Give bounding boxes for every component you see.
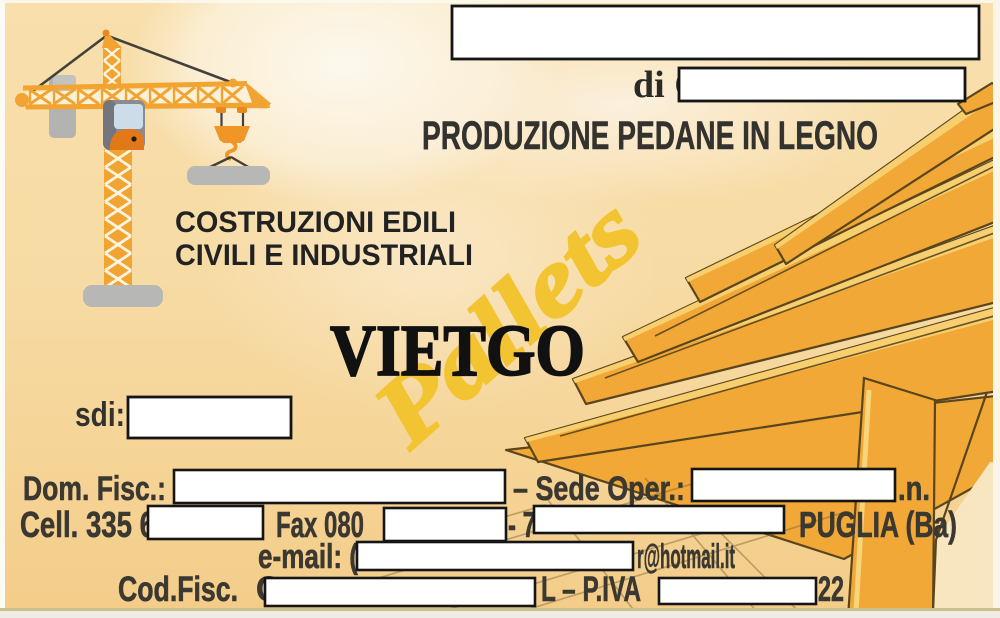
svg-text:L – P.IVA: L – P.IVA [541, 570, 641, 609]
svg-text:Cod.Fisc.: Cod.Fisc. [118, 570, 238, 609]
svg-text:COSTRUZIONI EDILI: COSTRUZIONI EDILI [175, 206, 456, 239]
svg-text:- 7: - 7 [508, 504, 536, 545]
svg-text:Dom. Fisc.:: Dom. Fisc.: [23, 470, 166, 508]
svg-text:r@hotmail.it: r@hotmail.it [637, 538, 735, 576]
svg-text:22: 22 [818, 570, 844, 609]
svg-text:PRODUZIONE PEDANE IN LEGNO: PRODUZIONE PEDANE IN LEGNO [422, 114, 878, 158]
svg-text:PUGLIA (Ba): PUGLIA (Ba) [799, 504, 957, 545]
svg-text:Cell. 335 6: Cell. 335 6 [20, 504, 155, 545]
svg-text:VIETGO: VIETGO [330, 310, 585, 391]
svg-text:.n.: .n. [898, 470, 930, 508]
svg-text:– Sede Oper.:: – Sede Oper.: [513, 470, 685, 508]
svg-text:CIVILI E INDUSTRIALI: CIVILI E INDUSTRIALI [175, 239, 473, 272]
svg-text:sdi:: sdi: [75, 396, 125, 434]
